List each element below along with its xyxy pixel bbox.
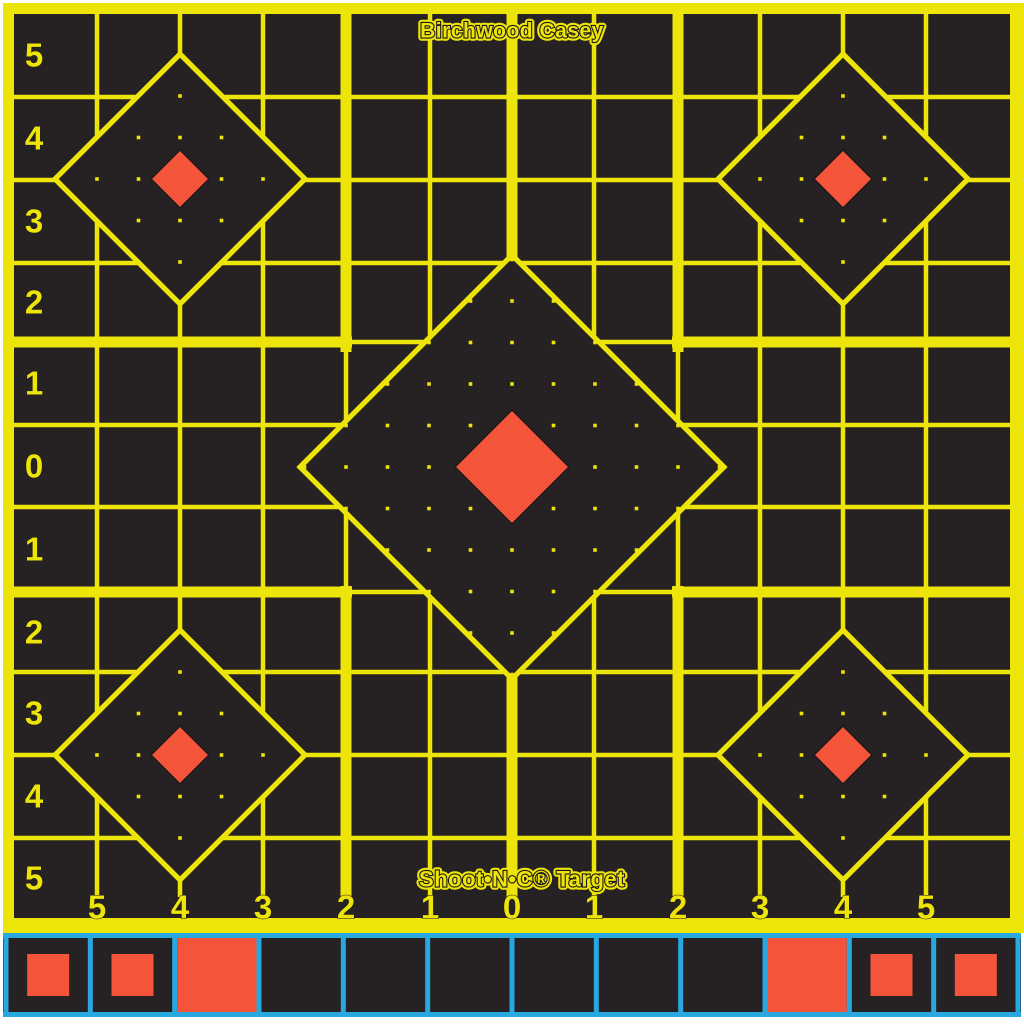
aim-dot bbox=[883, 219, 887, 223]
aim-dot bbox=[676, 507, 680, 511]
axis-bottom-label: 3 bbox=[751, 889, 769, 926]
axis-left-label: 1 bbox=[25, 365, 43, 402]
paster-square bbox=[112, 954, 154, 996]
aim-dot bbox=[137, 795, 141, 799]
aim-dot bbox=[261, 753, 265, 757]
aim-dot bbox=[552, 299, 556, 303]
aim-dot bbox=[137, 712, 141, 716]
axis-left-label: 1 bbox=[25, 531, 43, 568]
aim-dot bbox=[552, 590, 556, 594]
strip-divider bbox=[594, 933, 599, 1017]
grid-section-line-horizontal bbox=[14, 587, 352, 598]
aim-dot bbox=[924, 177, 928, 181]
aim-dot bbox=[178, 670, 182, 674]
strip-divider bbox=[425, 933, 430, 1017]
aim-dot bbox=[552, 507, 556, 511]
aim-dot bbox=[758, 177, 762, 181]
aim-dot bbox=[593, 548, 597, 552]
aim-dot bbox=[883, 177, 887, 181]
strip-divider bbox=[847, 933, 852, 1017]
aim-dot bbox=[635, 548, 639, 552]
aim-dot bbox=[883, 795, 887, 799]
aim-dot bbox=[718, 465, 722, 469]
aim-dot bbox=[427, 341, 431, 345]
aim-dot bbox=[178, 260, 182, 264]
aim-dot bbox=[386, 548, 390, 552]
product-title-text: Shoot•N•C® Target bbox=[419, 867, 625, 892]
aim-dot bbox=[469, 548, 473, 552]
axis-left-label: 3 bbox=[25, 203, 43, 240]
product-title: Shoot•N•C® Target Shoot•N•C® Target bbox=[419, 867, 625, 892]
axis-bottom-label: 4 bbox=[171, 889, 190, 926]
grid-section-line-horizontal bbox=[672, 337, 1010, 348]
aim-dot bbox=[137, 177, 141, 181]
aim-dot bbox=[386, 382, 390, 386]
aim-dot bbox=[841, 94, 845, 98]
aim-dot bbox=[178, 136, 182, 140]
strip-divider bbox=[763, 933, 768, 1017]
aim-dot bbox=[883, 712, 887, 716]
strip-divider bbox=[931, 933, 936, 1017]
aim-dot bbox=[676, 424, 680, 428]
aim-dot bbox=[676, 465, 680, 469]
aim-dot bbox=[220, 177, 224, 181]
aim-dot bbox=[800, 177, 804, 181]
aim-dot bbox=[593, 424, 597, 428]
aim-dot bbox=[552, 424, 556, 428]
aim-dot bbox=[303, 465, 307, 469]
aim-dot bbox=[344, 507, 348, 511]
aim-dot bbox=[552, 631, 556, 635]
aim-dot bbox=[510, 673, 514, 677]
target-sheet-page: 5432101234554321012345 Birchwood Casey B… bbox=[0, 0, 1024, 1024]
axis-bottom-label: 5 bbox=[88, 889, 106, 926]
axis-bottom-label: 1 bbox=[421, 889, 439, 926]
axis-bottom-label: 4 bbox=[834, 889, 853, 926]
aim-dot bbox=[427, 507, 431, 511]
strip-divider bbox=[510, 933, 515, 1017]
axis-bottom-label: 2 bbox=[337, 889, 355, 926]
aim-dot bbox=[552, 548, 556, 552]
aim-dot bbox=[178, 712, 182, 716]
aim-dot bbox=[883, 136, 887, 140]
axis-left-label: 2 bbox=[25, 284, 43, 321]
aim-dot bbox=[510, 341, 514, 345]
axis-left-label: 5 bbox=[25, 37, 43, 74]
aim-dot bbox=[841, 670, 845, 674]
aim-dot bbox=[841, 712, 845, 716]
strip-divider bbox=[4, 933, 9, 1017]
aim-dot bbox=[800, 219, 804, 223]
grid-section-line-horizontal bbox=[672, 587, 1010, 598]
aim-dot bbox=[344, 424, 348, 428]
aim-dot bbox=[95, 177, 99, 181]
aim-dot bbox=[469, 341, 473, 345]
aim-dot bbox=[427, 590, 431, 594]
strip-divider bbox=[172, 933, 177, 1017]
aim-dot bbox=[510, 631, 514, 635]
axis-left-label: 0 bbox=[25, 448, 43, 485]
aim-dot bbox=[924, 753, 928, 757]
aim-dot bbox=[469, 631, 473, 635]
axis-bottom-label: 2 bbox=[669, 889, 687, 926]
aim-dot bbox=[800, 795, 804, 799]
grid-section-line-vertical bbox=[341, 14, 352, 352]
aim-dot bbox=[427, 548, 431, 552]
aim-dot bbox=[635, 507, 639, 511]
aim-dot bbox=[883, 753, 887, 757]
grid-section-line-vertical bbox=[673, 14, 684, 352]
aim-dot bbox=[841, 260, 845, 264]
axis-left-label: 3 bbox=[25, 695, 43, 732]
aim-dot bbox=[469, 424, 473, 428]
aim-dot bbox=[593, 465, 597, 469]
aim-dot bbox=[220, 136, 224, 140]
aim-dot bbox=[427, 424, 431, 428]
aim-dot bbox=[593, 507, 597, 511]
axis-bottom-label: 3 bbox=[254, 889, 272, 926]
aim-dot bbox=[510, 382, 514, 386]
aim-dot bbox=[841, 836, 845, 840]
aim-dot bbox=[137, 219, 141, 223]
aim-dot bbox=[635, 424, 639, 428]
aim-dot bbox=[469, 590, 473, 594]
shoot-n-c-target: 5432101234554321012345 Birchwood Casey B… bbox=[0, 0, 1024, 1024]
aim-dot bbox=[800, 753, 804, 757]
aim-dot bbox=[758, 753, 762, 757]
grid-section-line-horizontal bbox=[14, 337, 352, 348]
aim-dot bbox=[469, 382, 473, 386]
aim-dot bbox=[178, 836, 182, 840]
aim-dot bbox=[469, 507, 473, 511]
aim-dot bbox=[800, 712, 804, 716]
strip-divider bbox=[257, 933, 262, 1017]
axis-left-label: 4 bbox=[25, 120, 44, 157]
paster-cell-filled bbox=[177, 938, 256, 1012]
grid-section-line-vertical bbox=[507, 14, 518, 257]
strip-divider bbox=[678, 933, 683, 1017]
aim-dot bbox=[841, 219, 845, 223]
aim-dot bbox=[510, 299, 514, 303]
aim-dot bbox=[261, 177, 265, 181]
aim-dot bbox=[220, 712, 224, 716]
axis-left-label: 4 bbox=[25, 778, 44, 815]
aim-dot bbox=[386, 465, 390, 469]
aim-dot bbox=[469, 299, 473, 303]
aim-dot bbox=[593, 341, 597, 345]
aim-dot bbox=[552, 341, 556, 345]
aim-dot bbox=[427, 382, 431, 386]
aim-dot bbox=[386, 507, 390, 511]
axis-bottom-label: 5 bbox=[917, 889, 935, 926]
aim-dot bbox=[510, 590, 514, 594]
aim-dot bbox=[178, 795, 182, 799]
aim-dot bbox=[635, 382, 639, 386]
aim-dot bbox=[427, 465, 431, 469]
aim-dot bbox=[386, 424, 390, 428]
paster-cell-filled bbox=[768, 938, 847, 1012]
aim-dot bbox=[593, 590, 597, 594]
aim-dot bbox=[178, 219, 182, 223]
axis-left-label: 2 bbox=[25, 614, 43, 651]
aim-dot bbox=[841, 136, 845, 140]
strip-divider bbox=[1016, 933, 1021, 1017]
aim-dot bbox=[635, 465, 639, 469]
strip-divider bbox=[88, 933, 93, 1017]
axis-bottom-label: 0 bbox=[503, 889, 521, 926]
axis-bottom-label: 1 bbox=[585, 889, 603, 926]
aim-dot bbox=[510, 548, 514, 552]
strip-divider bbox=[341, 933, 346, 1017]
grid-section-line-vertical bbox=[673, 586, 684, 897]
aim-dot bbox=[220, 219, 224, 223]
axis-left-label: 5 bbox=[25, 860, 43, 897]
paster-square bbox=[871, 954, 913, 996]
paster-square bbox=[955, 954, 997, 996]
aim-dot bbox=[137, 136, 141, 140]
aim-dot bbox=[510, 258, 514, 262]
grid-section-line-vertical bbox=[507, 677, 518, 897]
aim-dot bbox=[593, 382, 597, 386]
aim-dot bbox=[178, 94, 182, 98]
paster-square bbox=[27, 954, 69, 996]
aim-dot bbox=[344, 465, 348, 469]
aim-dot bbox=[800, 136, 804, 140]
aim-dot bbox=[220, 795, 224, 799]
aim-dot bbox=[137, 753, 141, 757]
paster-strip bbox=[3, 933, 1021, 1017]
grid-section-line-vertical bbox=[341, 586, 352, 897]
aim-dot bbox=[552, 382, 556, 386]
brand-title-text: Birchwood Casey bbox=[420, 20, 604, 43]
brand-title: Birchwood Casey Birchwood Casey bbox=[420, 20, 604, 43]
aim-dot bbox=[220, 753, 224, 757]
aim-dot bbox=[841, 795, 845, 799]
aim-dot bbox=[95, 753, 99, 757]
